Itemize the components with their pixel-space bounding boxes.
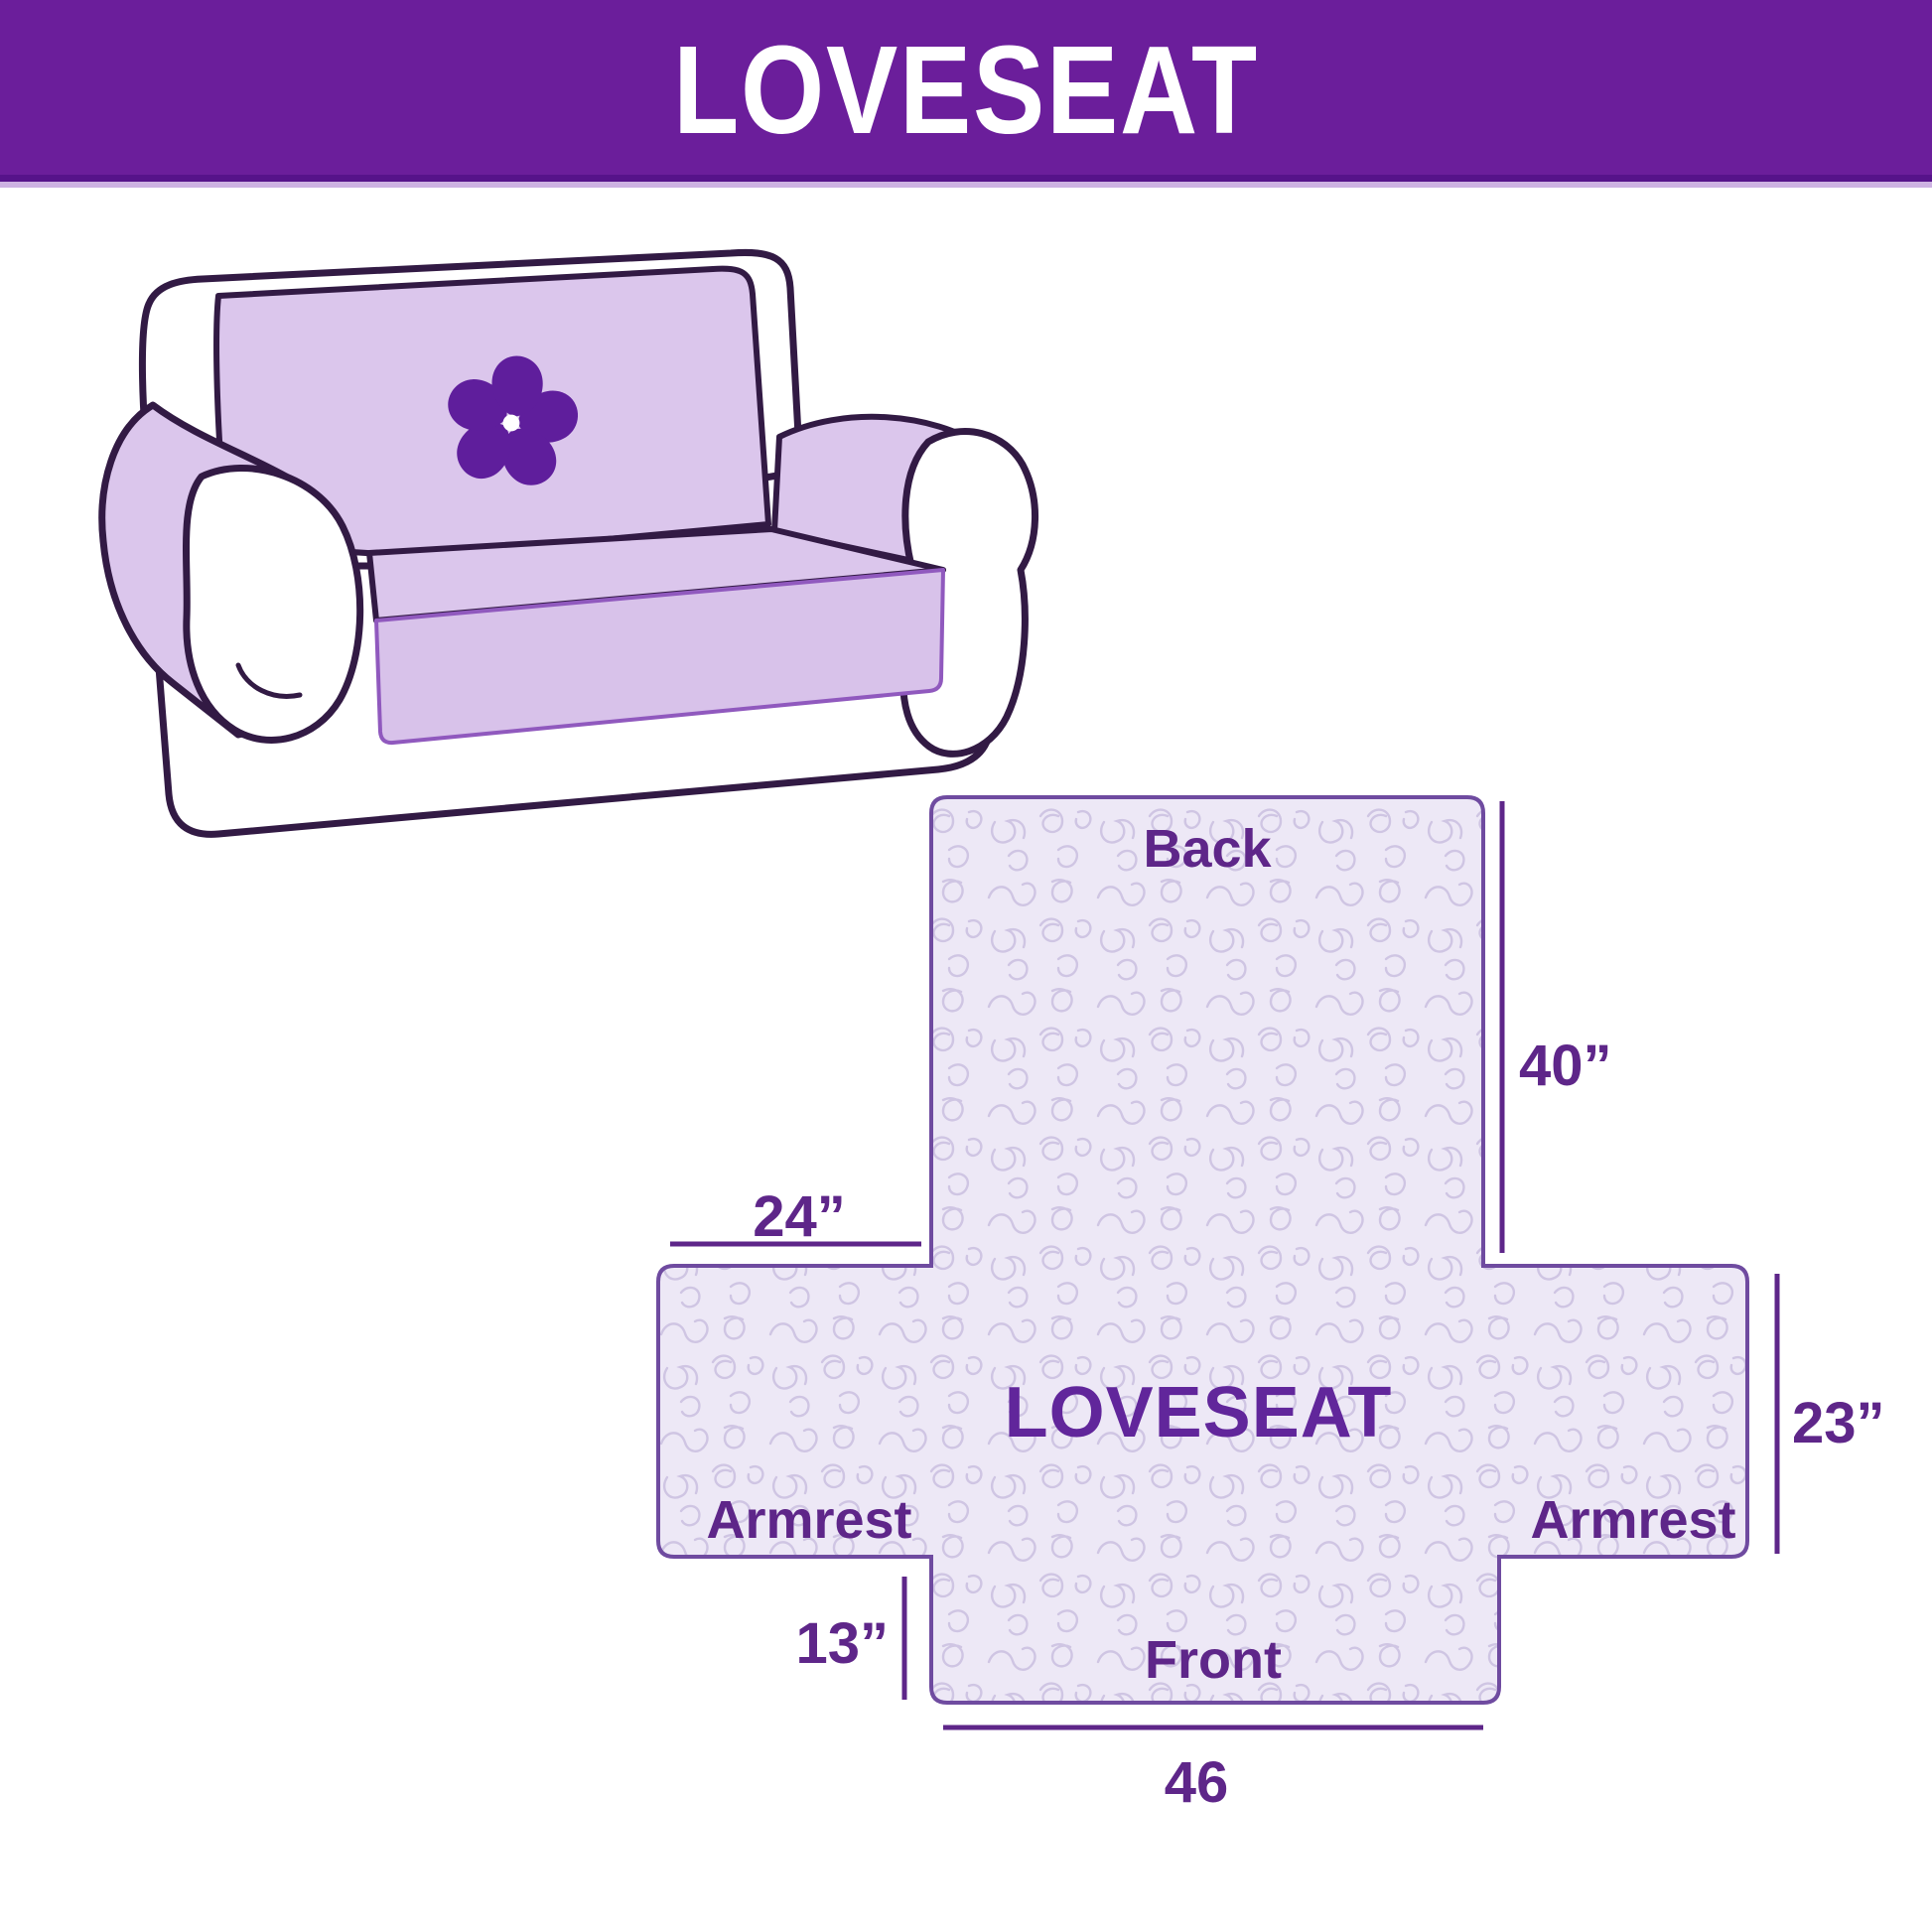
page-title: LOVESEAT: [135, 0, 1797, 175]
sofa-left-arm-roll: [187, 468, 360, 740]
page: LOVESEAT: [0, 0, 1932, 1932]
front-section-label: Front: [1145, 1630, 1282, 1690]
armrest-right-label: Armrest: [1530, 1490, 1735, 1550]
dim-front-height-label: 13”: [795, 1611, 889, 1676]
header-banner: LOVESEAT: [0, 0, 1932, 175]
dim-back-height-label: 40”: [1519, 1034, 1612, 1098]
dim-front-width-label: 46: [1165, 1750, 1229, 1815]
header-separator-dark: [0, 175, 1932, 182]
dim-armrest-width-label: 24”: [753, 1184, 846, 1249]
armrest-left-label: Armrest: [706, 1490, 911, 1550]
dim-side-height-label: 23”: [1792, 1391, 1885, 1455]
cover-diagram: Back Armrest Armrest Front LOVESEAT 24” …: [556, 635, 1932, 1857]
cover-outline-shape: [658, 797, 1747, 1703]
diagram-title: LOVESEAT: [1005, 1373, 1393, 1452]
header-separator-light: [0, 182, 1932, 188]
back-section-label: Back: [1143, 819, 1272, 879]
